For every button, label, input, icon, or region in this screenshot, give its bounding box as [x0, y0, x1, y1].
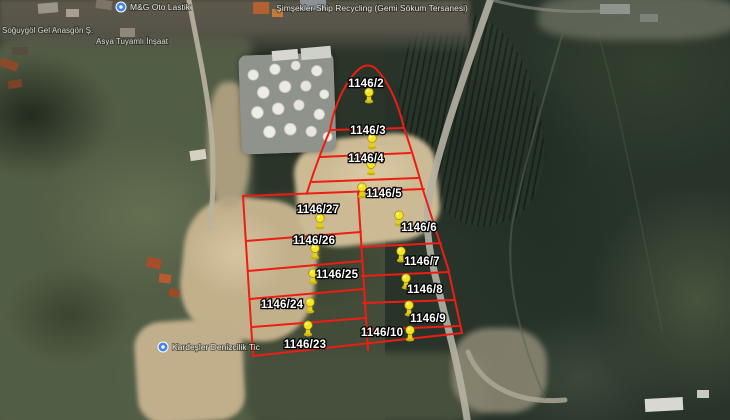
parcel-left-edge: [243, 196, 253, 356]
parcel-label-1146-10[interactable]: 1146/10: [361, 327, 403, 339]
divider-4-5: [312, 178, 418, 182]
parcel-label-1146-24[interactable]: 1146/24: [261, 299, 304, 311]
poi-label-left-2[interactable]: Asya Tuyamlı İnşaat: [96, 37, 169, 46]
pushpin-icon[interactable]: [365, 88, 374, 104]
parcel-label-1146-27[interactable]: 1146/27: [297, 204, 339, 216]
parcel-label-1146-25[interactable]: 1146/25: [316, 269, 359, 281]
poi-labels: Şimşekler Ship Recycling (Gemi Sökum Ter…: [2, 2, 468, 352]
parcel-label-1146-8[interactable]: 1146/8: [407, 284, 443, 296]
parcel-label-1146-9[interactable]: 1146/9: [410, 313, 446, 325]
pushpin-icon[interactable]: [406, 326, 415, 342]
poi-icon[interactable]: [116, 2, 126, 12]
pushpin-icon[interactable]: [358, 183, 367, 199]
poi-label-left-1[interactable]: Soğuygöl Gel Anasgön Ş.: [2, 26, 93, 35]
parcel-label-1146-2[interactable]: 1146/2: [348, 78, 384, 90]
roads: [188, 0, 662, 420]
parcel-label-1146-5[interactable]: 1146/5: [366, 188, 402, 200]
poi-icon[interactable]: [158, 342, 168, 352]
map-overlay: 1146/2 1146/3 1146/4 1146/5 1146/27 1146…: [0, 0, 730, 420]
parcel-label-1146-4[interactable]: 1146/4: [348, 153, 384, 165]
parcel-labels: 1146/2 1146/3 1146/4 1146/5 1146/27 1146…: [261, 78, 446, 351]
satellite-map-view[interactable]: 1146/2 1146/3 1146/4 1146/5 1146/27 1146…: [0, 0, 730, 420]
pushpin-icon[interactable]: [316, 214, 325, 230]
parcel-label-1146-26[interactable]: 1146/26: [293, 235, 335, 247]
parcel-left-upper-boundary: [307, 130, 330, 193]
divider-25-24: [250, 289, 364, 299]
parcel-label-1146-23[interactable]: 1146/23: [284, 339, 326, 351]
parcel-label-1146-7[interactable]: 1146/7: [404, 256, 440, 268]
poi-label-oto[interactable]: M&G Oto Lastik: [130, 2, 191, 12]
poi-label-marina[interactable]: Kardeşler Denizcilik Tic: [172, 342, 261, 352]
poi-label-shipyard[interactable]: Şimşekler Ship Recycling (Gemi Sökum Ter…: [276, 3, 468, 13]
pushpin-icon[interactable]: [304, 321, 313, 337]
parcel-label-1146-6[interactable]: 1146/6: [401, 222, 437, 234]
parcel-label-1146-3[interactable]: 1146/3: [350, 125, 386, 137]
pushpin-icon[interactable]: [306, 298, 315, 314]
